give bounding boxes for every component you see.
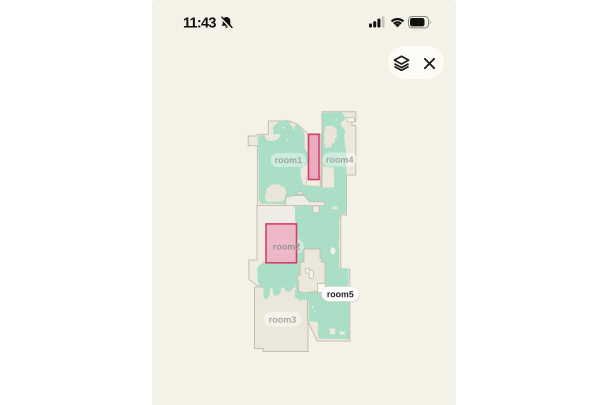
svg-text:room1: room1: [275, 155, 303, 165]
svg-text:room3: room3: [269, 315, 297, 325]
svg-text:room4: room4: [326, 155, 354, 165]
svg-text:room5: room5: [327, 289, 354, 299]
svg-text:room2: room2: [273, 242, 301, 252]
